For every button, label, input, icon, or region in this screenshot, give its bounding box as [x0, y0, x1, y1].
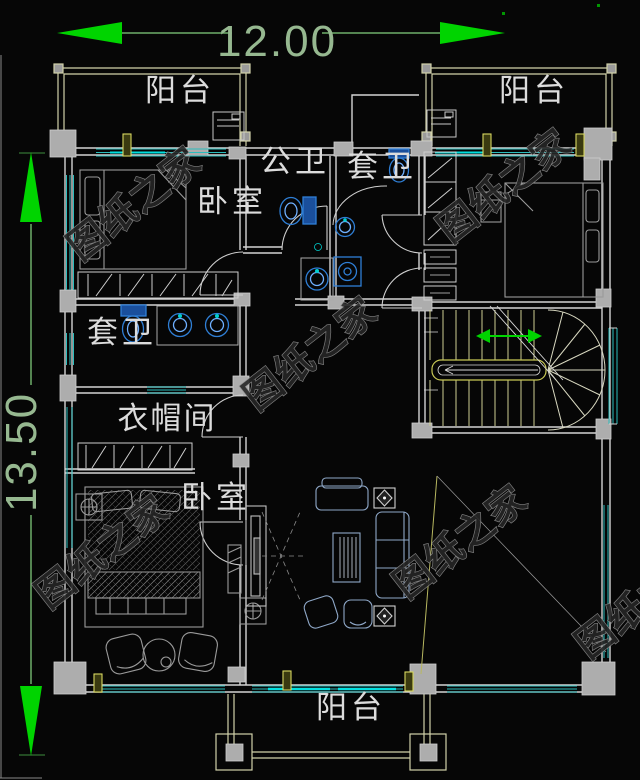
floor-drain — [315, 244, 322, 251]
public-bath-sink — [306, 268, 328, 290]
dimension-top: 12.00 — [57, 17, 505, 66]
edge-artifacts — [0, 4, 600, 778]
ceiling-fan-icon-2 — [240, 598, 266, 624]
label-balcony-top-left: 阳台 — [145, 73, 215, 108]
label-public-bathroom: 公卫 — [260, 144, 330, 179]
dimension-height-label: 13.50 — [0, 392, 46, 512]
washing-machine — [334, 257, 361, 286]
ensuite-left-sinks — [169, 314, 229, 337]
dimension-arrow-down-icon — [20, 686, 42, 756]
interior-walls-vertical — [240, 156, 425, 685]
watermark-text: 图纸之家 — [60, 140, 209, 269]
end-tables — [374, 488, 395, 626]
label-balcony-bottom: 阳台 — [316, 690, 386, 725]
label-bedroom-top-left: 卧室 — [197, 184, 267, 219]
armchairs-and-table — [104, 631, 219, 676]
label-ensuite-bathroom-top: 套卫 — [347, 149, 417, 184]
door-ensuite-top — [382, 215, 422, 253]
wardrobe-bedroom-top-left — [78, 272, 238, 298]
dimension-left: 13.50 — [0, 152, 46, 756]
tv-sight-lines — [262, 512, 305, 600]
label-cloakroom: 衣帽间 — [118, 401, 217, 436]
ensuite-top-sink — [336, 218, 355, 237]
label-balcony-top-right: 阳台 — [499, 73, 569, 108]
dimension-arrow-right-icon — [440, 22, 505, 44]
living-room-furniture — [246, 478, 409, 630]
label-ensuite-bathroom-left: 套卫 — [87, 315, 157, 350]
wardrobe-cloakroom — [78, 443, 192, 470]
door-bedroom-top-left — [200, 252, 243, 295]
public-bath-toilet — [280, 197, 316, 225]
floor-plan-canvas: 12.00 13.50 — [0, 0, 640, 780]
floor-plan-drawing: 12.00 13.50 — [0, 0, 640, 780]
stair-direction-arrows — [476, 329, 542, 343]
stair-winders — [548, 310, 605, 430]
shaft-walls — [352, 95, 419, 148]
coffee-table — [333, 533, 360, 582]
watermark-text: 图纸之家 — [236, 290, 385, 419]
label-bedroom-bottom-left: 卧室 — [181, 480, 251, 515]
ac-unit-left-icon — [213, 112, 244, 140]
dimension-arrow-up-icon — [20, 152, 42, 222]
dimension-arrow-left-icon — [57, 22, 122, 44]
dresser — [228, 545, 241, 593]
shower-screen — [333, 186, 387, 225]
dimension-width-label: 12.00 — [217, 17, 337, 66]
